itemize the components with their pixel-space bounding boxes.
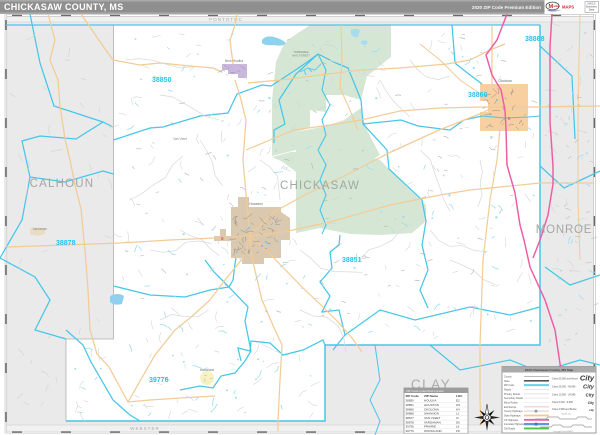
- svg-text:CHICKASAW COUNTY, MS: CHICKASAW COUNTY, MS: [4, 2, 124, 12]
- svg-text:ZIP Code: ZIP Code: [504, 384, 515, 387]
- svg-text:Cities 5,000 - 9,999: Cities 5,000 - 9,999: [552, 401, 573, 404]
- svg-text:Data: Data: [589, 8, 595, 12]
- svg-text:Woodland: Woodland: [200, 368, 215, 372]
- svg-text:MONROE: MONROE: [536, 224, 593, 236]
- svg-text:2020 ZIP Code Premium Edition: 2020 ZIP Code Premium Edition: [472, 5, 541, 10]
- svg-text:38851: 38851: [342, 257, 362, 264]
- svg-text:CHICKASAW: CHICKASAW: [280, 180, 360, 192]
- svg-text:NATL FOREST: NATL FOREST: [292, 54, 310, 58]
- svg-text:arket: arket: [554, 4, 561, 8]
- svg-text:38850: 38850: [152, 77, 172, 84]
- svg-text:New Houlka: New Houlka: [225, 59, 243, 63]
- svg-text:State: State: [504, 380, 510, 383]
- svg-text:39776: 39776: [406, 429, 415, 433]
- svg-text:WOODLAND: WOODLAND: [424, 429, 443, 433]
- svg-text:ZIP Code: ZIP Code: [406, 394, 420, 398]
- svg-text:Interstate Highways: Interstate Highways: [504, 423, 526, 426]
- svg-text:Minor Roads: Minor Roads: [504, 401, 518, 404]
- svg-text:Cities 25,000 - 49,999: Cities 25,000 - 49,999: [552, 386, 576, 389]
- svg-text:WEBSTER: WEBSTER: [130, 426, 160, 431]
- svg-text:Copyright MarketMAPS: Copyright MarketMAPS: [553, 430, 575, 433]
- svg-text:ZIP Code Index/Grid Locator: ZIP Code Index/Grid Locator: [406, 389, 444, 393]
- svg-text:CALHOUN: CALHOUN: [30, 178, 95, 190]
- svg-text:County Highways: County Highways: [504, 410, 523, 413]
- svg-text:City: City: [585, 393, 594, 398]
- svg-text:City: City: [580, 374, 595, 383]
- svg-text:Roads: Roads: [504, 388, 512, 391]
- svg-text:Exit Ramps: Exit Ramps: [504, 406, 517, 409]
- svg-text:F8: F8: [456, 429, 460, 433]
- svg-text:City: City: [583, 385, 595, 391]
- svg-text:County: County: [504, 376, 512, 379]
- svg-text:Primary Roads: Primary Roads: [504, 393, 521, 396]
- svg-text:LOC: LOC: [456, 394, 463, 398]
- svg-text:ZIP Name: ZIP Name: [424, 394, 438, 398]
- svg-text:TOMBIGBEE: TOMBIGBEE: [293, 50, 309, 54]
- svg-text:city: city: [589, 408, 594, 412]
- svg-text:Toll Roads: Toll Roads: [504, 427, 516, 430]
- svg-text:MAPS: MAPS: [562, 5, 574, 10]
- svg-text:PONTOTOC: PONTOTOC: [209, 17, 243, 22]
- svg-text:Scale 1:2: Scale 1:2: [561, 414, 571, 416]
- svg-text:Okolona: Okolona: [498, 79, 511, 83]
- svg-text:City: City: [588, 401, 596, 405]
- svg-text:Cities 4,999 and Below: Cities 4,999 and Below: [552, 408, 577, 411]
- svg-text:State Highways: State Highways: [504, 414, 521, 417]
- svg-text:38868: 38868: [525, 36, 545, 43]
- svg-text:US Highways: US Highways: [504, 419, 519, 422]
- svg-text:Cities 10,000 - 24,999: Cities 10,000 - 24,999: [552, 394, 576, 397]
- svg-text:38878: 38878: [56, 240, 76, 247]
- svg-text:Vardaman: Vardaman: [33, 227, 48, 231]
- svg-text:Houston: Houston: [249, 202, 262, 206]
- svg-text:Cities 50,000 and Above: Cities 50,000 and Above: [552, 378, 579, 381]
- svg-text:2020 Chickasaw County, MS Map: 2020 Chickasaw County, MS Map: [525, 368, 574, 372]
- svg-text:Van Vleet: Van Vleet: [173, 137, 187, 141]
- svg-text:Secondary Roads: Secondary Roads: [504, 397, 524, 400]
- svg-text:38860: 38860: [468, 92, 488, 99]
- svg-text:39776: 39776: [149, 377, 169, 384]
